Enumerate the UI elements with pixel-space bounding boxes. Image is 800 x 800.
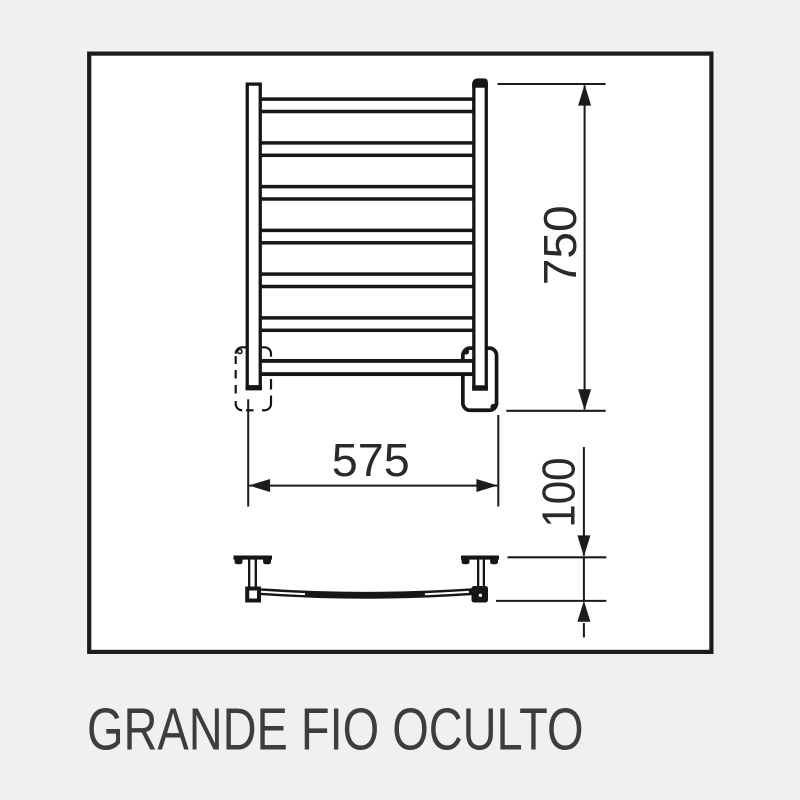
svg-text:750: 750 xyxy=(534,205,586,285)
svg-text:575: 575 xyxy=(332,434,410,486)
svg-text:100: 100 xyxy=(533,458,585,528)
svg-text:GRANDE FIO OCULTO: GRANDE FIO OCULTO xyxy=(87,696,584,762)
